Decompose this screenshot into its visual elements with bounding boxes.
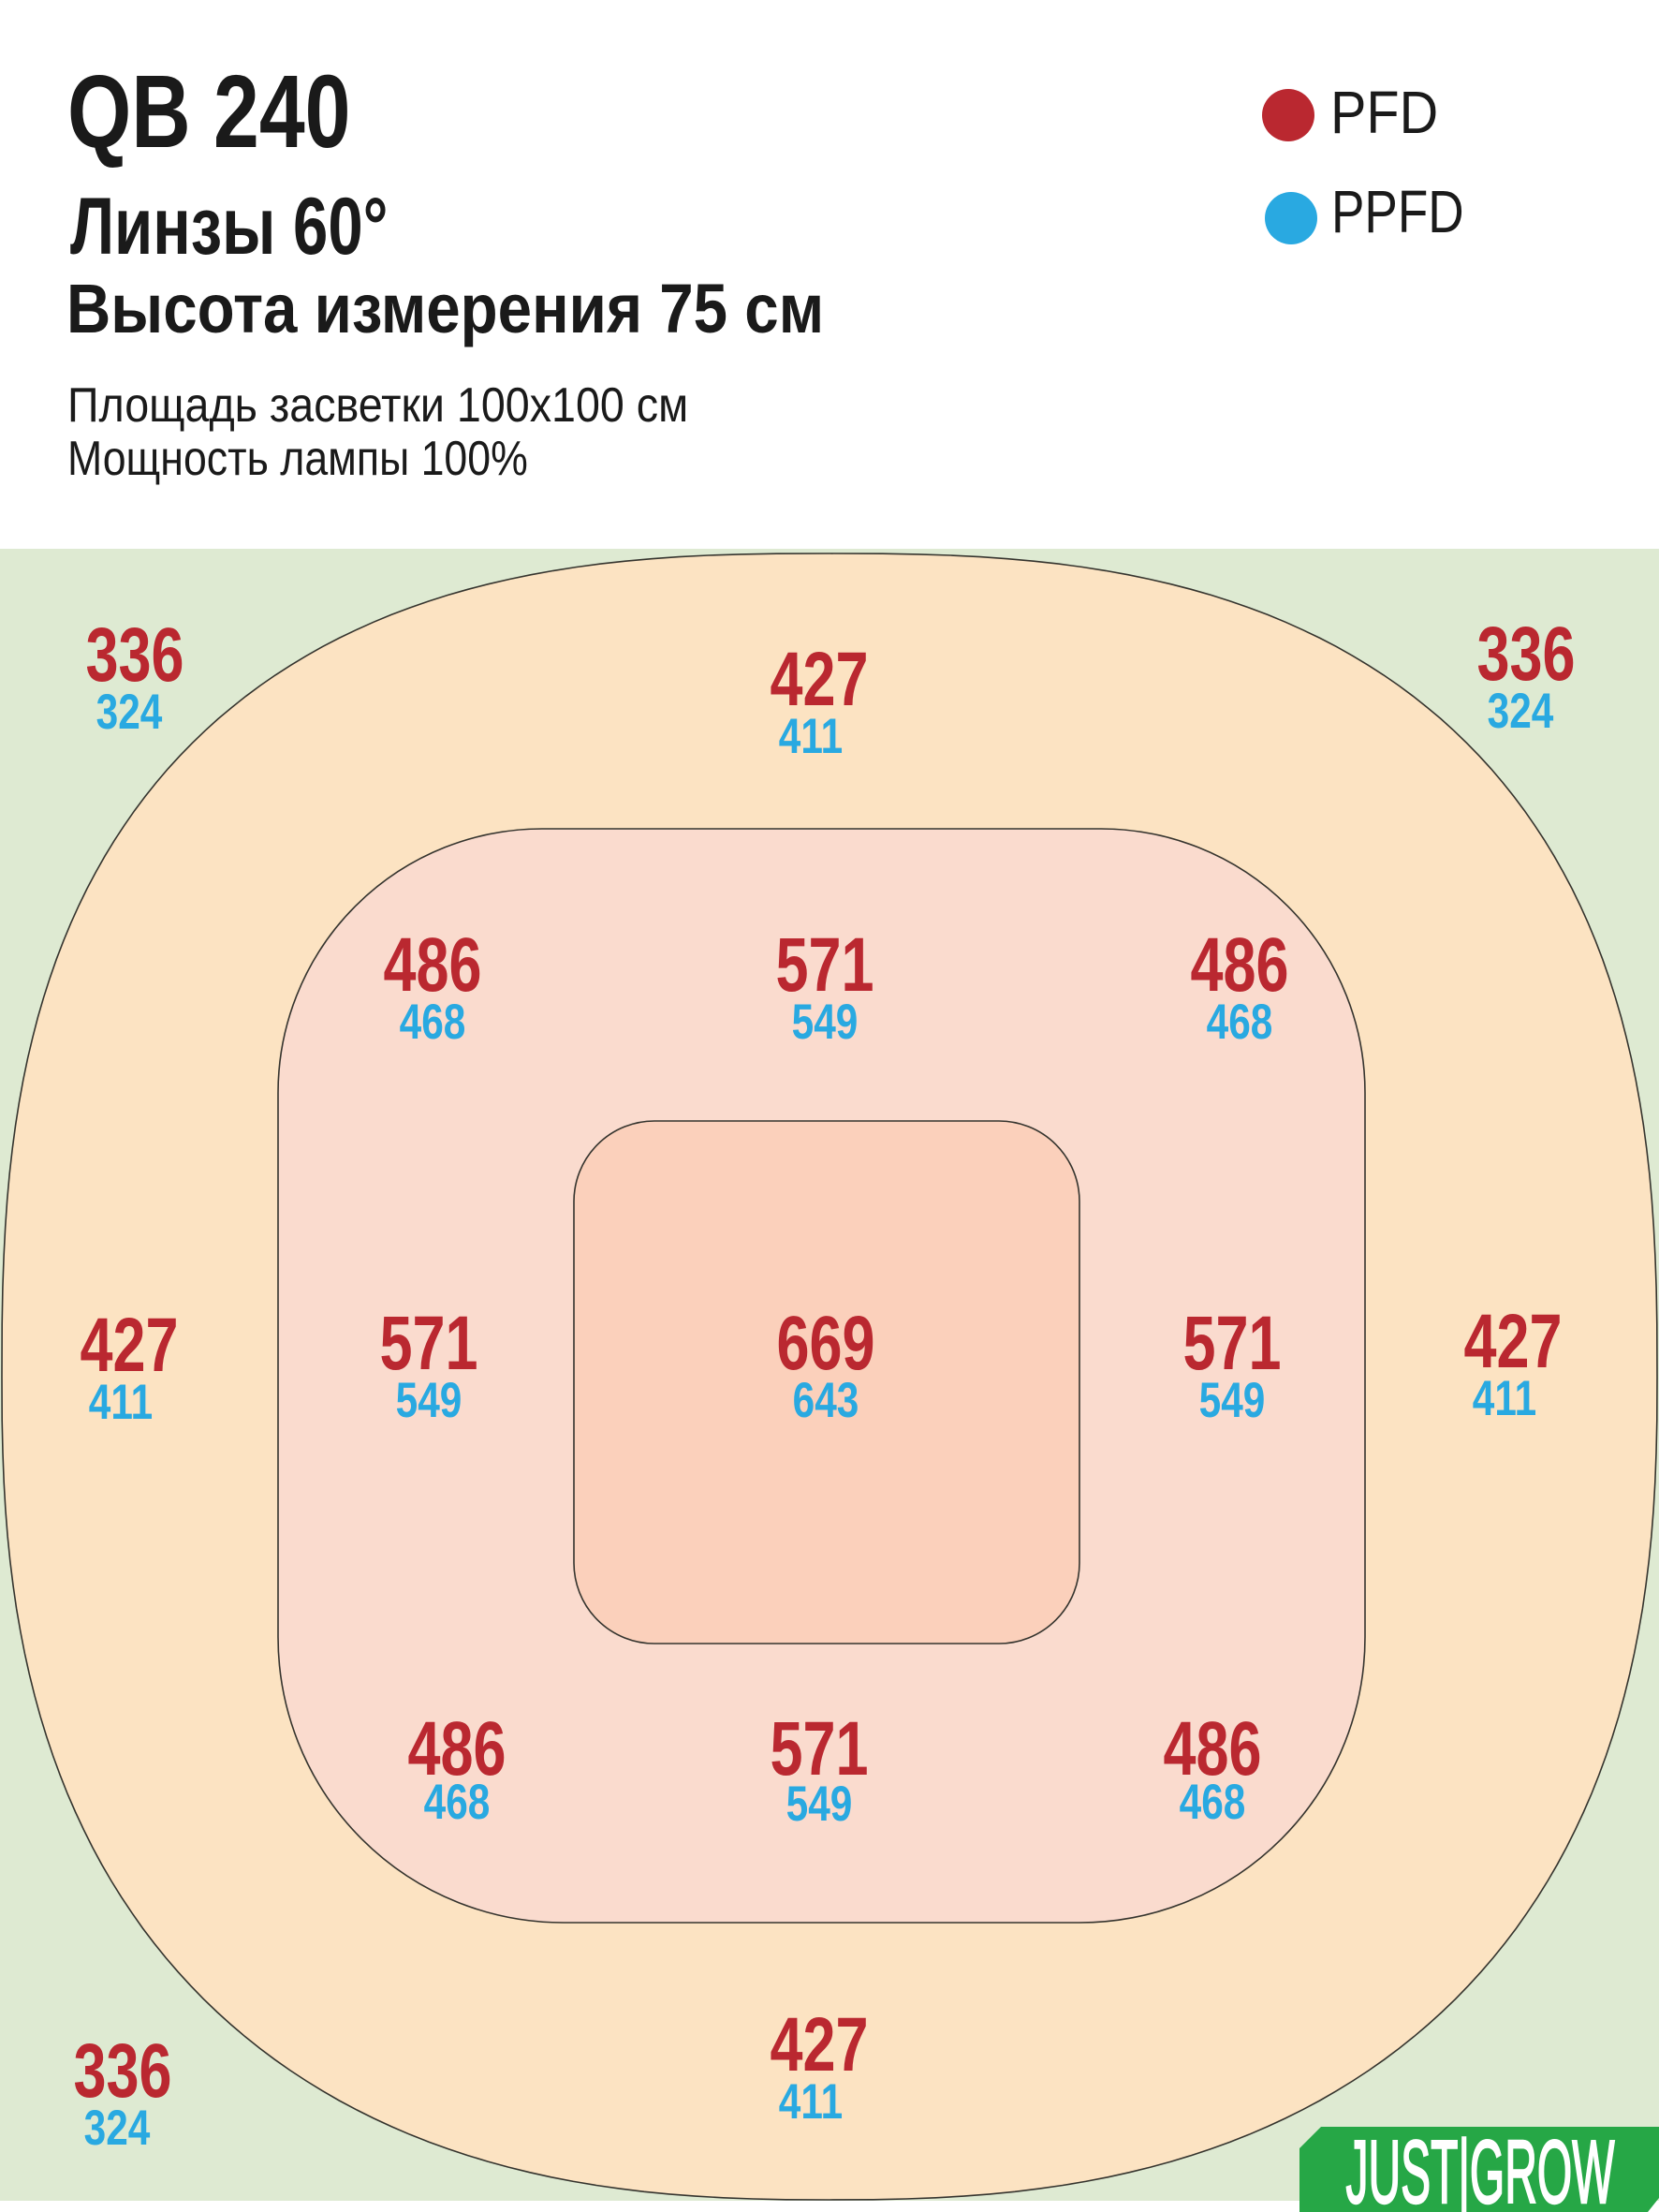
svg-text:468: 468 [400,995,466,1051]
svg-text:324: 324 [84,2101,151,2157]
svg-text:549: 549 [396,1374,462,1429]
svg-text:Площадь засветки 100x100 см: Площадь засветки 100x100 см [67,378,688,433]
svg-text:468: 468 [1180,1776,1246,1831]
svg-text:Линзы 60°: Линзы 60° [70,182,388,272]
svg-text:Высота измерения 75 см: Высота измерения 75 см [66,270,824,347]
svg-text:468: 468 [1207,995,1273,1051]
svg-text:Мощность лампы 100%: Мощность лампы 100% [67,432,528,486]
svg-text:411: 411 [1473,1372,1536,1427]
svg-text:324: 324 [1488,685,1554,740]
svg-text:468: 468 [424,1776,491,1831]
svg-text:PPFD: PPFD [1331,179,1464,245]
svg-text:324: 324 [96,686,163,741]
svg-text:411: 411 [89,1376,153,1431]
svg-text:JUST|GROW: JUST|GROW [1345,2122,1614,2212]
svg-text:643: 643 [793,1374,859,1429]
svg-text:549: 549 [792,995,859,1051]
svg-text:411: 411 [779,710,843,765]
svg-text:PFD: PFD [1330,79,1438,145]
svg-text:411: 411 [779,2075,843,2131]
svg-text:549: 549 [786,1777,853,1833]
svg-text:QB 240: QB 240 [67,55,350,170]
svg-text:549: 549 [1199,1374,1266,1429]
